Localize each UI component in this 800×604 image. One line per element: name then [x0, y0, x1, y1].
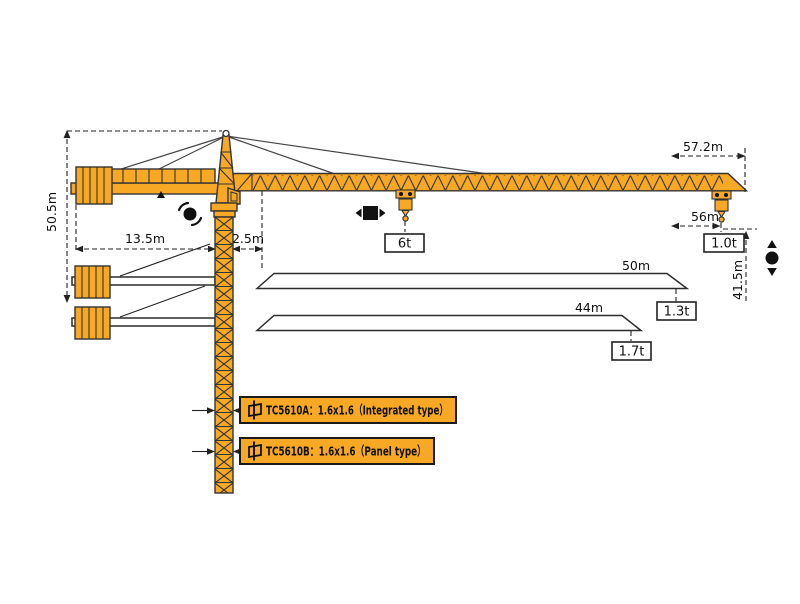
- hook-taper: [718, 212, 725, 218]
- counterweight-block: [76, 167, 112, 204]
- jib-tip-radius-label: 57.2m: [683, 139, 723, 154]
- arrow-up-icon: [767, 240, 777, 248]
- arrowhead-right-icon: [207, 448, 215, 454]
- counter-jib-radius-label: 13.5m: [125, 231, 165, 246]
- tower-crane-spec-diagram: 50m 44m 50.5m 13.5m 2.5m 57.2m 56m 41.5m…: [0, 0, 800, 600]
- counter-jib: [71, 167, 218, 204]
- apex-pin-icon: [223, 131, 229, 137]
- section-type-label: TC5610B：1.6x1.6（Panel type）: [266, 444, 426, 459]
- trolley-wheel-icon: [408, 192, 412, 196]
- slewing-icon: [179, 203, 201, 225]
- tip-load-44m-value: 1.7t: [619, 345, 645, 360]
- slewing-platform: [211, 203, 237, 211]
- hook-block: [399, 199, 412, 210]
- jib-outline-44m: [257, 316, 641, 331]
- section-type-label: TC5610A：1.6x1.6（Integrated type）: [266, 403, 448, 418]
- arrowhead-left-icon: [671, 153, 679, 160]
- jib-length-label: 50m: [622, 258, 650, 273]
- load-labels: 6t 1.0t 1.3t 1.7t: [385, 234, 744, 360]
- trolley-wheel-icon: [399, 192, 403, 196]
- arrowhead-down-icon: [64, 295, 71, 303]
- slew-dot: [184, 208, 197, 221]
- tip-load-50m-value: 1.3t: [664, 305, 690, 320]
- hook-icon: [719, 217, 724, 222]
- main-jib: [233, 174, 747, 191]
- jib-variant-44m: 44m: [257, 300, 641, 331]
- arrow-left-icon: [356, 209, 362, 218]
- max-hook-radius-label: 56m: [691, 209, 719, 224]
- tip-load-value: 1.0t: [711, 237, 737, 252]
- tower-offset-label: 2.5m: [232, 231, 264, 246]
- variant-counterweight: [75, 266, 110, 298]
- hoist-dot: [766, 252, 779, 265]
- variant-counterweight: [75, 307, 110, 339]
- arrow-down-icon: [767, 268, 777, 276]
- trolley-square: [363, 206, 378, 220]
- arrowhead-right-icon: [738, 153, 746, 160]
- max-load-value: 6t: [398, 237, 411, 252]
- hook-taper: [402, 211, 409, 217]
- under-hook-height-label: 41.5m: [730, 260, 745, 300]
- jib-length-label: 44m: [575, 300, 603, 315]
- hook-icon: [403, 216, 408, 221]
- arrowhead-right-icon: [207, 407, 215, 413]
- trolley-frame: [712, 191, 731, 199]
- tower-mast: [215, 217, 233, 493]
- jib-lattice-pattern: [253, 175, 723, 190]
- tie-line: [120, 286, 205, 317]
- trolley-wheel-icon: [715, 193, 719, 197]
- arrow-right-icon: [380, 209, 386, 218]
- jib-variant-50m: 50m: [257, 258, 687, 289]
- total-height-label: 50.5m: [44, 192, 59, 232]
- arrowhead-left-icon: [671, 223, 679, 230]
- trolley-travel-icon: [356, 206, 386, 220]
- trolley-hook-mid: [396, 190, 415, 221]
- hoisting-icon: [766, 240, 779, 276]
- mast-lattice-pattern: [215, 217, 233, 493]
- turntable: [214, 211, 235, 217]
- jib-outline-50m: [257, 274, 687, 289]
- trolley-wheel-icon: [724, 193, 728, 197]
- diagram-canvas: 50m 44m 50.5m 13.5m 2.5m 57.2m 56m 41.5m…: [0, 0, 800, 600]
- trolley-frame: [396, 190, 415, 198]
